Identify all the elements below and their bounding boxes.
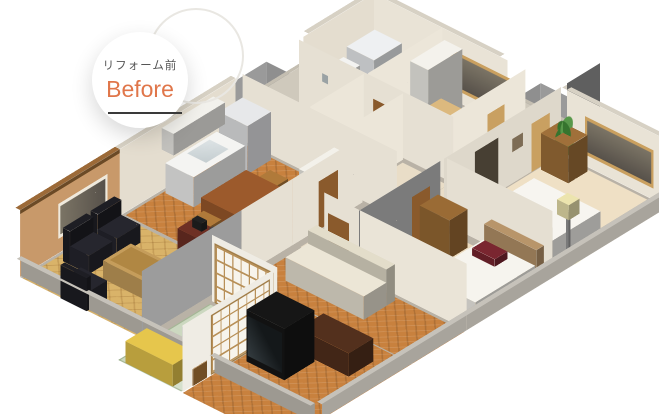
badge-underline — [108, 112, 182, 114]
badge-label-jp: リフォーム前 — [103, 57, 178, 73]
sofa-back-side-e — [386, 264, 395, 306]
badge-label-before: Before — [106, 76, 174, 103]
screenshot-stage: リフォーム前 Before — [0, 0, 659, 414]
